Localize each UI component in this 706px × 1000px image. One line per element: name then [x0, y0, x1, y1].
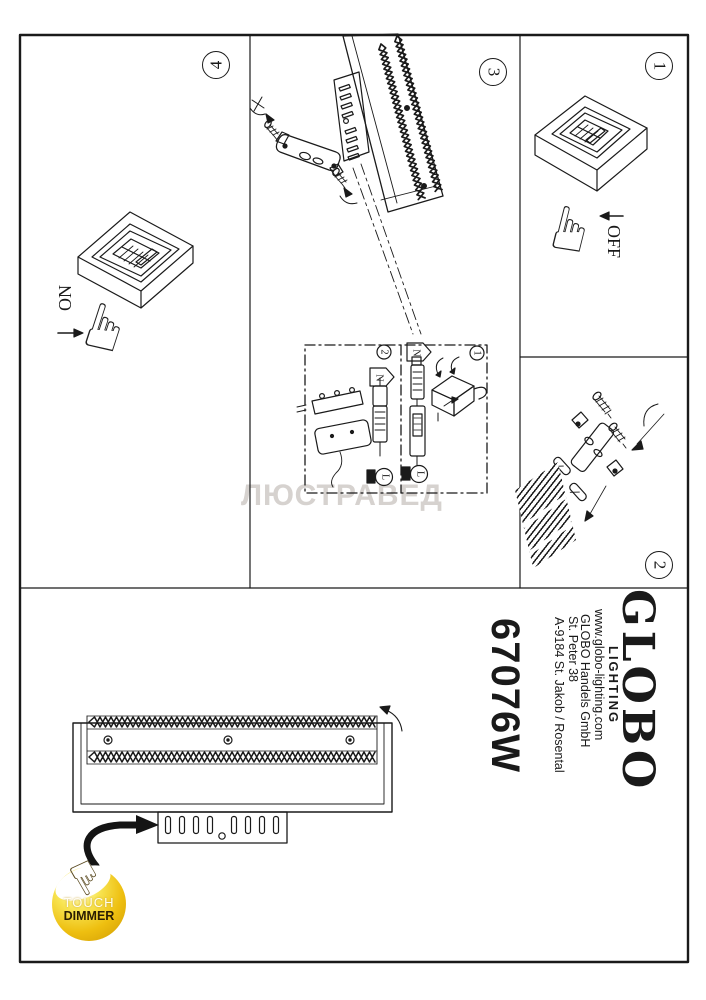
model-number: 67076W [482, 618, 527, 773]
inset-n-label-left: N [374, 374, 385, 381]
inset-l-label-left: L [380, 474, 391, 480]
on-label: ON [55, 285, 76, 311]
brand-logo-sub: LIGHTING [606, 646, 621, 724]
step1-switch-box-drawing [535, 96, 647, 191]
step4-on-arrow [58, 329, 83, 337]
touch-dimmer-badge: ☝ TOUCH DIMMER [52, 867, 126, 941]
step-3-badge: 3 [479, 58, 507, 86]
step-4-number: 4 [206, 61, 226, 70]
inset-connector-left-drawing [373, 378, 387, 456]
badge-dimmer-label: DIMMER [52, 909, 126, 923]
step3-bracket-drawing [250, 97, 421, 334]
step-1-number: 1 [649, 62, 669, 71]
brand-street: St. Peter 38 [566, 616, 580, 682]
inset-terminal-block-drawing [297, 388, 372, 487]
instruction-sheet: ЛЮСТРАВЕД [0, 0, 706, 1000]
step-2-badge: 2 [645, 551, 673, 579]
step-3-number: 3 [483, 68, 503, 77]
brand-city: A-9184 St. Jakob / Rosental [552, 617, 566, 773]
badge-touch-label: TOUCH [52, 895, 126, 910]
inset-n-label-right: N [411, 349, 422, 356]
badge-arrow [87, 815, 159, 866]
brand-website: www.globo-lighting.com [592, 609, 606, 740]
off-label: OFF [603, 225, 624, 258]
step2-mounting-parts-drawing [552, 391, 664, 521]
inset-connector-right-drawing [410, 357, 425, 465]
wiring-inset: N N L L 2 1 [297, 343, 487, 493]
step-2-number: 2 [649, 561, 669, 570]
brand-company: GLOBO Handels GmbH [578, 614, 592, 747]
inset-step2-label: 2 [379, 349, 390, 354]
step3-fixture-drawing [334, 34, 443, 212]
step-4-badge: 4 [202, 51, 230, 79]
manual-line-art: N N L L 2 1 [0, 0, 706, 1000]
step1-off-arrow [600, 212, 623, 220]
inset-l-label-right: L [415, 471, 426, 477]
step-1-badge: 1 [645, 52, 673, 80]
inset-step1-label: 1 [472, 350, 483, 355]
inset-switch-drawing [432, 357, 486, 421]
